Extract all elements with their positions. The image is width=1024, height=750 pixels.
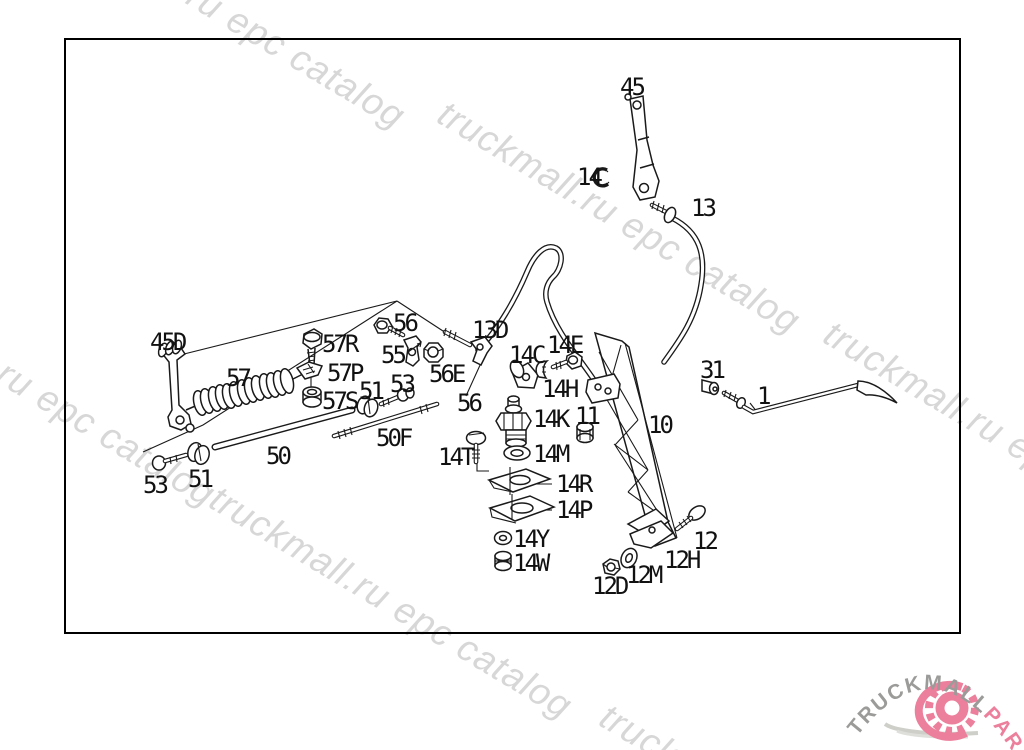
label-14: 14 <box>577 163 602 191</box>
label-14t: 14T <box>438 443 475 471</box>
part-12-bolt <box>677 503 708 529</box>
part-14w-grommet <box>495 552 511 571</box>
part-14r-plate <box>489 467 550 495</box>
label-14e: 14E <box>547 331 583 359</box>
label-12h: 12H <box>664 546 700 574</box>
part-10-pedal <box>586 333 677 546</box>
label-31: 31 <box>700 356 724 384</box>
label-14c: 14C <box>509 341 545 369</box>
part-55-bracket <box>404 336 421 366</box>
label-12d: 12D <box>592 572 628 600</box>
label-13d: 13D <box>472 316 508 344</box>
label-57r: 57R <box>322 330 360 358</box>
label-50f: 50F <box>376 424 413 452</box>
watermark-text: truckmall.ru epc catalog <box>817 313 1024 562</box>
label-57: 57 <box>226 364 250 392</box>
label-14r: 14R <box>556 470 594 498</box>
part-1-rod <box>724 381 897 412</box>
watermark-text: truckmall.ru epc catalog <box>593 696 970 750</box>
label-14h: 14H <box>542 375 578 403</box>
label-56-mid: 56 <box>457 389 481 417</box>
label-10: 10 <box>648 411 672 439</box>
label-51-upper: 51 <box>359 377 383 405</box>
label-14m: 14M <box>533 440 570 468</box>
label-50: 50 <box>266 442 290 470</box>
part-57s-nut <box>303 387 321 407</box>
label-1: 1 <box>757 382 770 410</box>
part-14k-valve <box>496 396 531 447</box>
label-45: 45 <box>620 73 644 101</box>
label-14p: 14P <box>556 496 593 524</box>
label-51-lower: 51 <box>188 465 212 493</box>
label-57s: 57S <box>322 387 358 415</box>
label-14k: 14K <box>533 405 571 433</box>
watermark-text: truckmall.ru epc catalog <box>36 0 413 136</box>
label-12m: 12M <box>626 561 663 589</box>
label-53-upper: 53 <box>390 370 414 398</box>
label-53-lower: 53 <box>143 471 167 499</box>
label-11: 11 <box>575 402 599 430</box>
label-14w: 14W <box>513 549 551 577</box>
label-56-top: 56 <box>393 309 417 337</box>
epc-diagram-page: truckmall.ru epc catalog truckmall.ru ep… <box>0 0 1024 750</box>
label-13: 13 <box>691 194 715 222</box>
part-57p-clip <box>297 362 322 379</box>
part-45-lever <box>625 94 659 200</box>
watermark-layer: truckmall.ru epc catalog truckmall.ru ep… <box>0 0 1024 750</box>
part-14m-washer <box>504 446 530 460</box>
label-56e: 56E <box>429 360 465 388</box>
part-14y-washer <box>495 532 512 545</box>
part-14p-plate <box>490 494 554 523</box>
label-55: 55 <box>381 341 405 369</box>
label-45d: 45D <box>150 328 186 356</box>
watermark-text: truckmall.ru epc catalog <box>431 93 808 342</box>
